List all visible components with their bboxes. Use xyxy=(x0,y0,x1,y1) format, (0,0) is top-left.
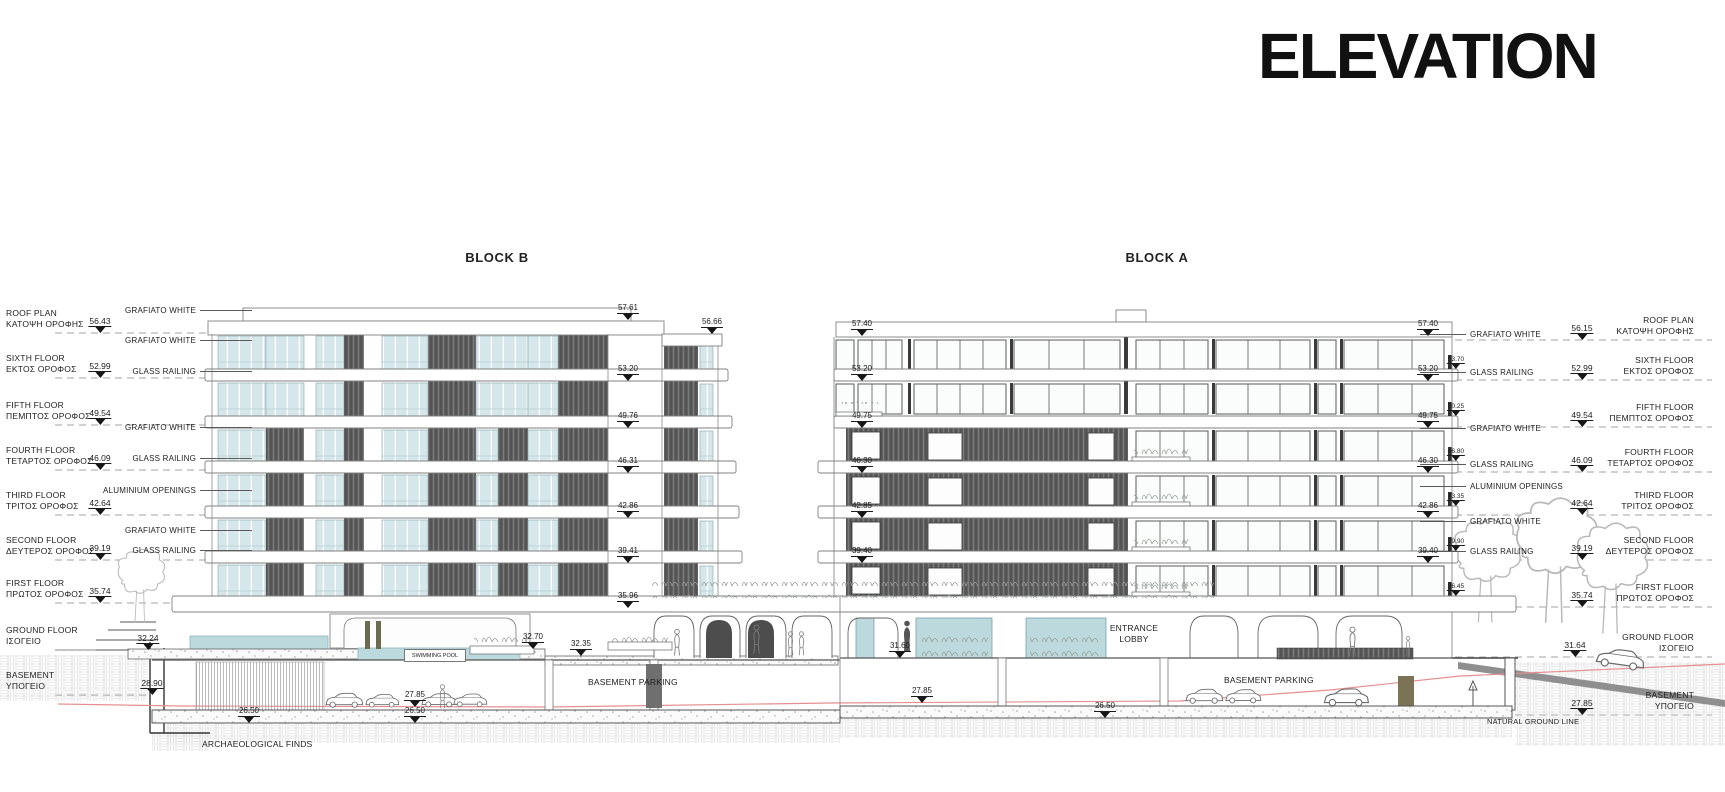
marker-value: 36.45 xyxy=(1447,583,1465,591)
marker-triangle xyxy=(623,375,633,381)
marker-triangle xyxy=(95,327,105,333)
marker-triangle xyxy=(1423,422,1433,428)
material-leader-line xyxy=(200,530,252,531)
elevation-marker: 32.70 xyxy=(522,633,544,649)
marker-value: 31.60 xyxy=(889,642,911,652)
marker-triangle xyxy=(1423,512,1433,518)
material-leader-line xyxy=(1420,521,1466,522)
elevation-marker: 57.40 xyxy=(1417,320,1439,336)
marker-triangle xyxy=(917,697,927,703)
marker-triangle xyxy=(623,557,633,563)
material-leader-line xyxy=(200,427,252,428)
material-label: ALUMINIUM OPENINGS xyxy=(58,486,196,495)
material-leader-line xyxy=(200,310,252,311)
material-leader-line xyxy=(200,340,252,341)
elevation-sheet: ELEVATION BLOCK B BLOCK A SWIMMING POOL … xyxy=(0,0,1725,792)
marker-triangle xyxy=(857,330,867,336)
marker-value: 46.30 xyxy=(851,457,873,467)
level-elevation-marker: 35.74 xyxy=(1570,591,1593,607)
archaeological-finds-label: ARCHAEOLOGICAL FINDS xyxy=(202,739,312,749)
elevation-marker: 39.40 xyxy=(1417,547,1439,563)
level-label-left: FIRST FLOORΠΡΩΤΟΣ ΟΡΟΦΟΣ xyxy=(6,578,98,600)
elevation-marker: 46.80 xyxy=(1447,448,1465,461)
block-a-title: BLOCK A xyxy=(1102,250,1212,265)
level-greek-name: ΤΡΙΤΟΣ ΟΡΟΦΟΣ xyxy=(6,501,98,512)
elevation-marker: 42.86 xyxy=(1417,502,1439,518)
elevation-marker: 26.50 xyxy=(404,707,426,723)
level-greek-name: ΥΠΟΓΕΙΟ xyxy=(1602,701,1694,712)
marker-triangle xyxy=(707,328,717,334)
material-leader-line xyxy=(1420,428,1466,429)
natural-ground-line-label: NATURAL GROUND LINE xyxy=(1487,717,1579,726)
marker-value: 42.85 xyxy=(851,502,873,512)
marker-triangle xyxy=(1577,709,1587,715)
marker-value: 42.64 xyxy=(88,499,111,509)
block-b-title: BLOCK B xyxy=(442,250,552,265)
basement-parking-a-label: BASEMENT PARKING xyxy=(1224,675,1314,685)
marker-value: 39.40 xyxy=(851,547,873,557)
marker-triangle xyxy=(1423,557,1433,563)
drawing-title: ELEVATION xyxy=(1258,24,1597,88)
elevation-marker: 50.25 xyxy=(1447,403,1465,416)
elevation-marker: 26.50 xyxy=(238,707,260,723)
elevation-marker: 26.50 xyxy=(1094,702,1116,718)
material-leader-line xyxy=(200,371,252,372)
marker-value: 42.64 xyxy=(1570,499,1593,509)
marker-value: 27.85 xyxy=(911,687,933,697)
marker-triangle xyxy=(95,464,105,470)
marker-value: 27.85 xyxy=(404,691,426,701)
marker-value: 26.50 xyxy=(404,707,426,717)
marker-value: 35.74 xyxy=(1570,591,1593,601)
marker-triangle xyxy=(1570,651,1580,657)
level-label-right: FIFTH FLOORΠΕΜΠΤΟΣ ΟΡΟΦΟΣ xyxy=(1602,402,1694,424)
marker-triangle xyxy=(623,422,633,428)
elevation-marker: 53.20 xyxy=(1417,365,1439,381)
marker-value: 49.75 xyxy=(1417,412,1439,422)
elevation-marker: 42.86 xyxy=(617,502,639,518)
elevation-marker: 53.20 xyxy=(851,365,873,381)
marker-value: 42.86 xyxy=(617,502,639,512)
material-label: GLASS RAILING xyxy=(1470,547,1640,556)
marker-triangle xyxy=(410,717,420,723)
marker-triangle xyxy=(1452,411,1460,416)
material-label: GRAFIATO WHITE xyxy=(1470,517,1640,526)
level-label-right: GROUND FLOORΙΣΟΓΕΙΟ xyxy=(1602,632,1694,654)
marker-triangle xyxy=(623,314,633,320)
marker-value: 53.20 xyxy=(1417,365,1439,375)
level-elevation-marker: 28.90 xyxy=(140,679,163,695)
marker-value: 49.54 xyxy=(88,409,111,419)
marker-value: 39.90 xyxy=(1447,538,1465,546)
level-greek-name: ΚΑΤΟΨΗ ΟΡΟΦΗΣ xyxy=(6,319,98,330)
material-label: GLASS RAILING xyxy=(1470,460,1640,469)
level-elevation-marker: 31.64 xyxy=(1563,641,1586,657)
elevation-marker: 32.35 xyxy=(570,640,592,656)
marker-value: 43.35 xyxy=(1447,493,1465,501)
material-leader-line xyxy=(200,550,252,551)
marker-value: 53.70 xyxy=(1447,356,1465,364)
marker-value: 49.76 xyxy=(617,412,639,422)
block-b-facade xyxy=(205,308,742,598)
marker-triangle xyxy=(528,643,538,649)
material-leader-line xyxy=(1420,486,1466,487)
marker-triangle xyxy=(1100,712,1110,718)
elevation-marker: 27.85 xyxy=(911,687,933,703)
marker-triangle xyxy=(857,375,867,381)
marker-value: 39.40 xyxy=(1417,547,1439,557)
elevation-marker: 57.61 xyxy=(617,304,639,320)
marker-triangle xyxy=(623,602,633,608)
level-name: FIRST FLOOR xyxy=(6,578,98,589)
material-label: GRAFIATO WHITE xyxy=(1470,424,1640,433)
marker-value: 57.40 xyxy=(851,320,873,330)
level-label-right: THIRD FLOORΤΡΙΤΟΣ ΟΡΟΦΟΣ xyxy=(1602,490,1694,512)
marker-value: 49.54 xyxy=(1570,411,1593,421)
marker-value: 27.85 xyxy=(1570,699,1593,709)
level-greek-name: ΤΡΙΤΟΣ ΟΡΟΦΟΣ xyxy=(1602,501,1694,512)
level-name: BASEMENT xyxy=(1602,690,1694,701)
marker-value: 56.66 xyxy=(701,318,723,328)
level-greek-name: ΠΡΩΤΟΣ ΟΡΟΦΟΣ xyxy=(1602,593,1694,604)
material-label: ALUMINIUM OPENINGS xyxy=(1470,482,1640,491)
marker-value: 28.90 xyxy=(140,679,163,689)
material-label: GLASS RAILING xyxy=(58,546,196,555)
marker-value: 57.40 xyxy=(1417,320,1439,330)
elevation-marker: 35.96 xyxy=(617,592,639,608)
basement-parking-b-label: BASEMENT PARKING xyxy=(588,677,678,687)
swimming-pool-label: SWIMMING POOL xyxy=(404,649,466,662)
level-name: SECOND FLOOR xyxy=(6,535,98,546)
marker-value: 26.50 xyxy=(238,707,260,717)
marker-triangle xyxy=(857,557,867,563)
marker-value: 35.96 xyxy=(617,592,639,602)
marker-triangle xyxy=(95,597,105,603)
marker-value: 46.30 xyxy=(1417,457,1439,467)
elevation-marker: 39.90 xyxy=(1447,538,1465,551)
marker-triangle xyxy=(143,644,153,650)
elevation-marker: 39.40 xyxy=(851,547,873,563)
level-elevation-marker: 32.24 xyxy=(136,634,159,650)
marker-value: 56.43 xyxy=(88,317,111,327)
marker-value: 42.86 xyxy=(1417,502,1439,512)
marker-triangle xyxy=(1452,591,1460,596)
marker-value: 46.80 xyxy=(1447,448,1465,456)
marker-value: 50.25 xyxy=(1447,403,1465,411)
marker-triangle xyxy=(1577,601,1587,607)
level-name: BASEMENT xyxy=(6,670,98,681)
elevation-marker: 57.40 xyxy=(851,320,873,336)
level-label-right: BASEMENTΥΠΟΓΕΙΟ xyxy=(1602,690,1694,712)
marker-triangle xyxy=(1423,467,1433,473)
marker-value: 39.41 xyxy=(617,547,639,557)
marker-value: 32.24 xyxy=(136,634,159,644)
level-name: GROUND FLOOR xyxy=(6,625,98,636)
level-name: FIFTH FLOOR xyxy=(1602,402,1694,413)
marker-triangle xyxy=(1577,509,1587,515)
material-label: GLASS RAILING xyxy=(58,367,196,376)
marker-value: 32.35 xyxy=(570,640,592,650)
marker-value: 32.70 xyxy=(522,633,544,643)
level-label-right: FIRST FLOORΠΡΩΤΟΣ ΟΡΟΦΟΣ xyxy=(1602,582,1694,604)
marker-triangle xyxy=(623,467,633,473)
level-name: SECOND FLOOR xyxy=(1602,535,1694,546)
marker-triangle xyxy=(857,512,867,518)
marker-value: 26.50 xyxy=(1094,702,1116,712)
level-name: FOURTH FLOOR xyxy=(1602,447,1694,458)
level-greek-name: ΙΣΟΓΕΙΟ xyxy=(1602,643,1694,654)
entrance-lobby-label: ENTRANCE LOBBY xyxy=(1102,623,1166,646)
level-label-left: GROUND FLOORΙΣΟΓΕΙΟ xyxy=(6,625,98,647)
level-elevation-marker: 42.64 xyxy=(88,499,111,515)
marker-triangle xyxy=(1452,501,1460,506)
material-label: GLASS RAILING xyxy=(58,454,196,463)
level-greek-name: ΠΕΜΠΤΟΣ ΟΡΟΦΟΣ xyxy=(6,411,98,422)
marker-value: 31.64 xyxy=(1563,641,1586,651)
elevation-marker: 49.75 xyxy=(851,412,873,428)
material-label: GRAFIATO WHITE xyxy=(58,526,196,535)
marker-value: 53.20 xyxy=(617,365,639,375)
marker-triangle xyxy=(1423,330,1433,336)
material-leader-line xyxy=(200,458,252,459)
marker-triangle xyxy=(95,509,105,515)
level-elevation-marker: 56.43 xyxy=(88,317,111,333)
marker-triangle xyxy=(1452,364,1460,369)
level-name: FIRST FLOOR xyxy=(1602,582,1694,593)
marker-triangle xyxy=(1452,456,1460,461)
elevation-marker: 53.70 xyxy=(1447,356,1465,369)
level-name: SIXTH FLOOR xyxy=(6,353,98,364)
elevation-marker: 31.60 xyxy=(889,642,911,658)
material-leader-line xyxy=(200,490,252,491)
marker-triangle xyxy=(895,652,905,658)
elevation-marker: 46.30 xyxy=(851,457,873,473)
marker-triangle xyxy=(244,717,254,723)
elevation-marker: 27.85 xyxy=(404,691,426,707)
marker-value: 53.20 xyxy=(851,365,873,375)
marker-value: 57.61 xyxy=(617,304,639,314)
level-label-left: BASEMENTΥΠΟΓΕΙΟ xyxy=(6,670,98,692)
elevation-marker: 42.85 xyxy=(851,502,873,518)
marker-triangle xyxy=(576,650,586,656)
elevation-marker: 43.35 xyxy=(1447,493,1465,506)
level-label-left: FIFTH FLOORΠΕΜΠΤΟΣ ΟΡΟΦΟΣ xyxy=(6,400,98,422)
level-name: SIXTH FLOOR xyxy=(1602,355,1694,366)
level-greek-name: ΥΠΟΓΕΙΟ xyxy=(6,681,98,692)
level-name: GROUND FLOOR xyxy=(1602,632,1694,643)
level-elevation-marker: 35.74 xyxy=(88,587,111,603)
marker-value: 46.31 xyxy=(617,457,639,467)
elevation-marker: 53.20 xyxy=(617,365,639,381)
elevation-marker: 46.30 xyxy=(1417,457,1439,473)
level-name: FIFTH FLOOR xyxy=(6,400,98,411)
level-greek-name: ΙΣΟΓΕΙΟ xyxy=(6,636,98,647)
level-greek-name: ΠΡΩΤΟΣ ΟΡΟΦΟΣ xyxy=(6,589,98,600)
level-name: THIRD FLOOR xyxy=(1602,490,1694,501)
marker-value: 35.74 xyxy=(88,587,111,597)
level-name: ROOF PLAN xyxy=(1602,315,1694,326)
material-label: GRAFIATO WHITE xyxy=(1470,330,1640,339)
elevation-marker: 39.41 xyxy=(617,547,639,563)
elevation-marker: 49.75 xyxy=(1417,412,1439,428)
level-elevation-marker: 42.64 xyxy=(1570,499,1593,515)
material-label: GRAFIATO WHITE xyxy=(58,336,196,345)
marker-triangle xyxy=(857,422,867,428)
marker-value: 49.75 xyxy=(851,412,873,422)
marker-triangle xyxy=(1423,375,1433,381)
elevation-marker: 46.31 xyxy=(617,457,639,473)
marker-triangle xyxy=(857,467,867,473)
marker-triangle xyxy=(147,689,157,695)
level-greek-name: ΠΕΜΠΤΟΣ ΟΡΟΦΟΣ xyxy=(1602,413,1694,424)
elevation-marker: 49.76 xyxy=(617,412,639,428)
material-label: GRAFIATO WHITE xyxy=(58,423,196,432)
elevation-marker: 56.66 xyxy=(701,318,723,334)
elevation-marker: 36.45 xyxy=(1447,583,1465,596)
marker-triangle xyxy=(623,512,633,518)
level-elevation-marker: 27.85 xyxy=(1570,699,1593,715)
material-label: GRAFIATO WHITE xyxy=(58,306,196,315)
elevation-drawing xyxy=(0,0,1725,792)
material-label: GLASS RAILING xyxy=(1470,368,1640,377)
marker-triangle xyxy=(1452,546,1460,551)
